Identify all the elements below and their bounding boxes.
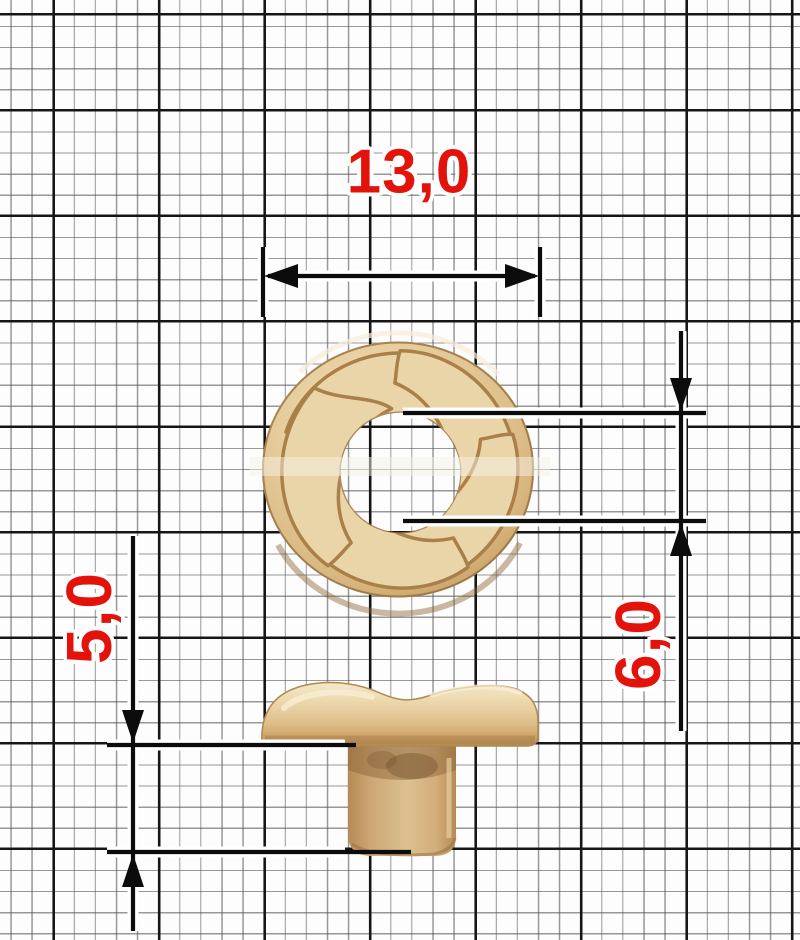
graph-paper-sheet: 13,0 5,0 6,0 [0,0,800,940]
dimension-label-hole-diameter: 6,0 [601,598,675,690]
side-view-stud [262,683,538,856]
watermark-band [250,457,550,476]
iris-blades [253,326,559,631]
dimension-label-width: 13,0 [347,137,472,208]
arrow-right-icon [505,264,539,288]
arrow-down-icon [122,710,144,743]
arrow-up-icon [670,523,692,556]
stem-mottle [367,751,397,769]
dimension-label-stem-height: 5,0 [52,572,126,664]
arrow-up-icon [122,854,144,887]
top-view-ring [250,326,559,631]
dim-width [263,247,540,317]
arrow-down-icon [670,378,692,411]
arrow-left-icon [264,264,298,288]
